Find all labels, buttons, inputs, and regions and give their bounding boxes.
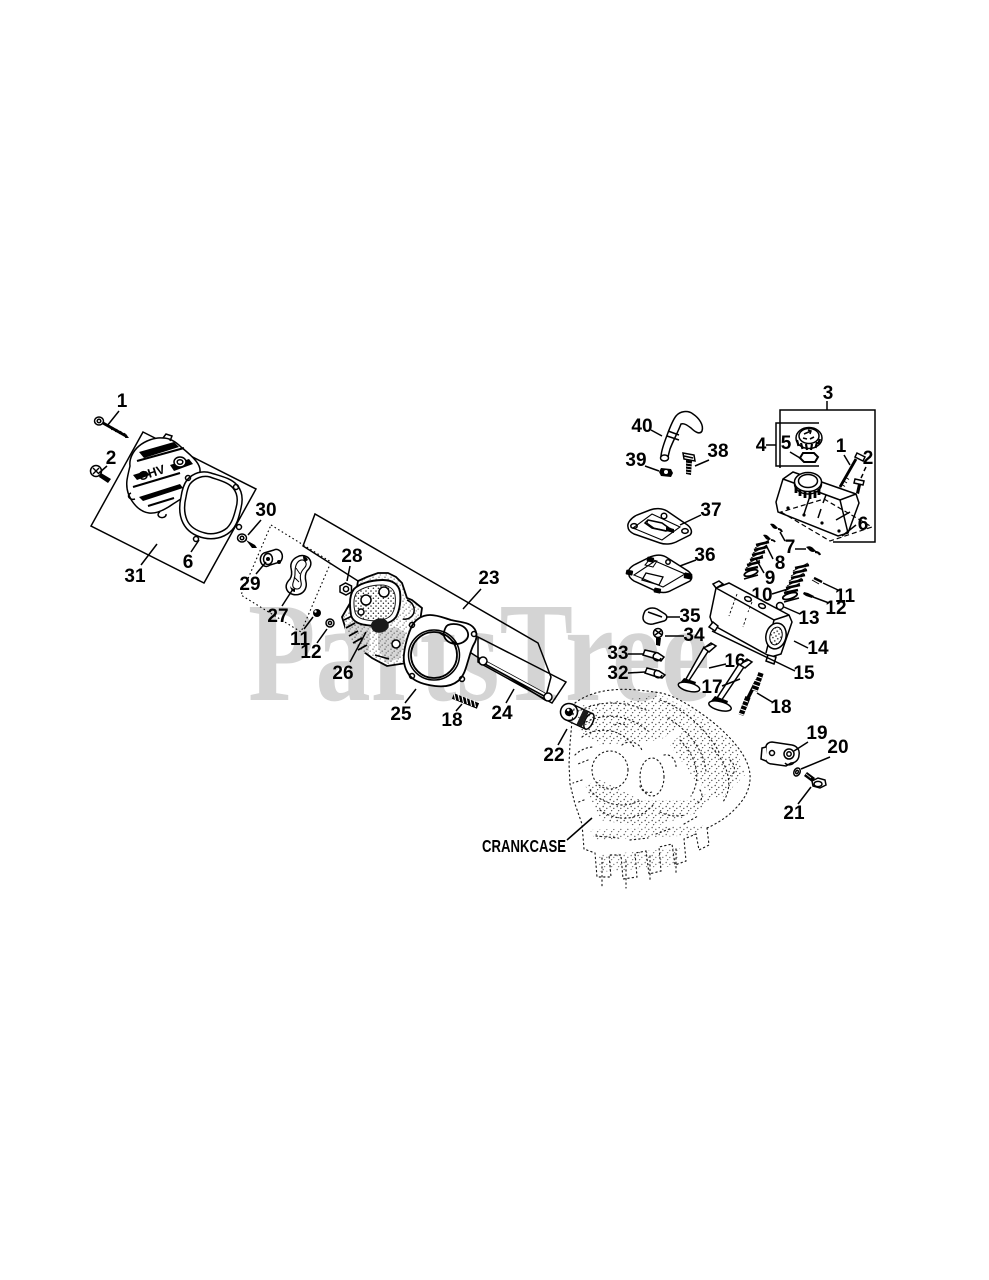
svg-text:18: 18 xyxy=(441,710,462,731)
svg-text:6: 6 xyxy=(183,552,194,573)
svg-text:31: 31 xyxy=(124,566,146,587)
svg-text:5: 5 xyxy=(781,433,792,454)
svg-text:32: 32 xyxy=(607,663,628,684)
svg-text:8: 8 xyxy=(775,553,786,574)
svg-text:17: 17 xyxy=(701,677,722,698)
svg-text:30: 30 xyxy=(255,500,276,521)
svg-text:15: 15 xyxy=(793,663,815,684)
svg-text:33: 33 xyxy=(607,643,628,664)
svg-text:3: 3 xyxy=(823,383,834,404)
svg-text:36: 36 xyxy=(694,545,715,566)
svg-text:35: 35 xyxy=(679,606,701,627)
svg-text:28: 28 xyxy=(341,546,362,567)
svg-text:12: 12 xyxy=(300,642,321,663)
svg-text:23: 23 xyxy=(478,568,499,589)
svg-text:40: 40 xyxy=(631,416,652,437)
svg-text:29: 29 xyxy=(239,574,260,595)
svg-text:34: 34 xyxy=(683,625,705,646)
svg-text:24: 24 xyxy=(491,703,513,724)
svg-text:26: 26 xyxy=(332,663,353,684)
svg-text:1: 1 xyxy=(836,436,847,457)
svg-text:1: 1 xyxy=(117,391,128,412)
svg-text:14: 14 xyxy=(807,638,829,659)
svg-text:37: 37 xyxy=(700,500,721,521)
svg-text:39: 39 xyxy=(625,450,646,471)
svg-text:18: 18 xyxy=(770,697,791,718)
svg-text:12: 12 xyxy=(825,598,846,619)
svg-text:CRANKCASE: CRANKCASE xyxy=(482,836,566,856)
svg-text:13: 13 xyxy=(798,608,819,629)
svg-text:2: 2 xyxy=(863,448,874,469)
svg-text:38: 38 xyxy=(707,441,728,462)
svg-text:21: 21 xyxy=(783,803,805,824)
svg-text:6: 6 xyxy=(858,514,869,535)
svg-text:27: 27 xyxy=(267,606,288,627)
svg-text:25: 25 xyxy=(390,704,412,725)
svg-text:22: 22 xyxy=(543,745,564,766)
svg-text:19: 19 xyxy=(806,723,827,744)
svg-text:4: 4 xyxy=(756,435,767,456)
svg-text:20: 20 xyxy=(827,737,848,758)
svg-text:2: 2 xyxy=(106,448,117,469)
svg-text:7: 7 xyxy=(785,537,796,558)
